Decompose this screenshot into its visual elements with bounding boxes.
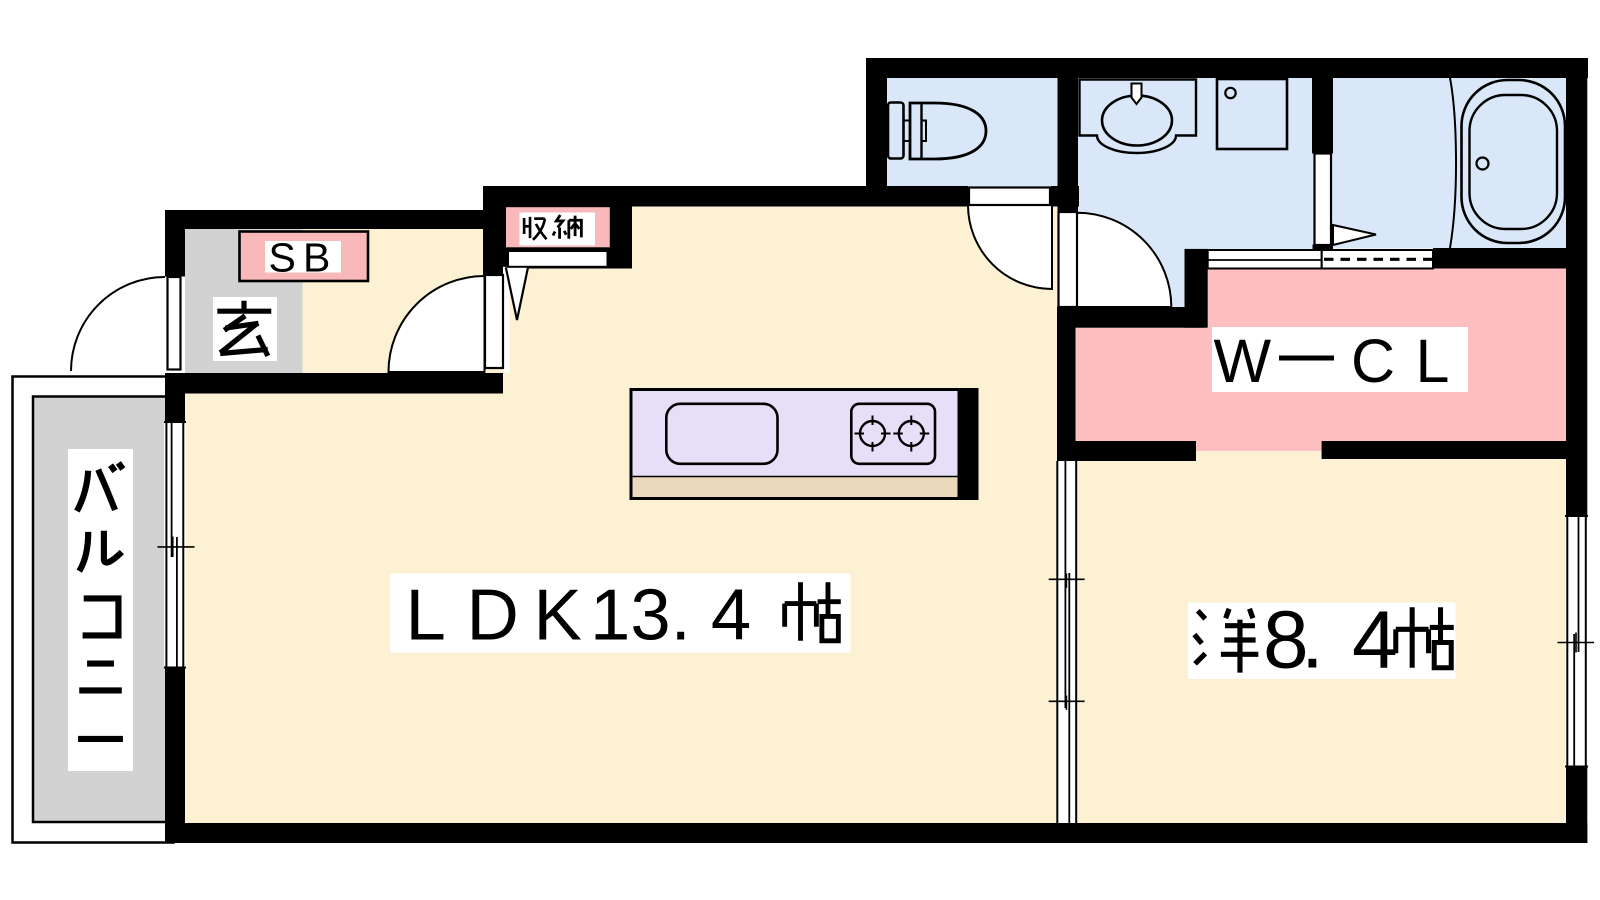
- svg-text:D: D: [467, 575, 519, 656]
- svg-text:K: K: [534, 575, 582, 656]
- svg-text:4: 4: [1352, 595, 1398, 686]
- svg-text:13. 4: 13. 4: [590, 575, 751, 656]
- svg-text:B: B: [303, 235, 330, 281]
- svg-text:L: L: [406, 575, 446, 656]
- svg-text:W: W: [1214, 327, 1272, 395]
- svg-text:L: L: [1416, 327, 1450, 395]
- svg-text:C: C: [1351, 327, 1395, 395]
- svg-text:.: .: [1301, 595, 1324, 686]
- svg-text:S: S: [269, 235, 296, 281]
